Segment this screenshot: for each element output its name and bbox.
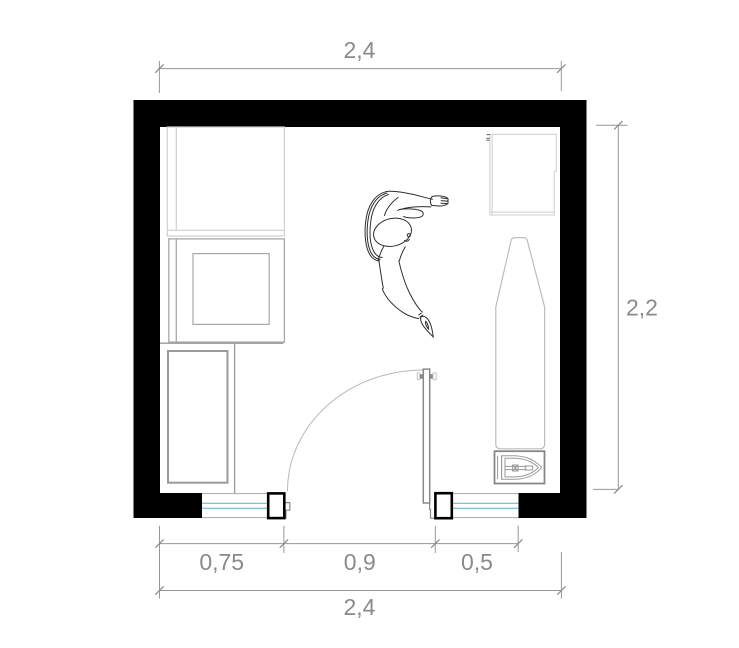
svg-text:0,75: 0,75 — [199, 549, 244, 575]
svg-text:0,9: 0,9 — [344, 549, 376, 575]
svg-text:2,2: 2,2 — [626, 295, 658, 321]
svg-text:0,5: 0,5 — [461, 549, 493, 575]
svg-text:2,4: 2,4 — [344, 37, 376, 63]
svg-text:2,4: 2,4 — [344, 594, 376, 620]
